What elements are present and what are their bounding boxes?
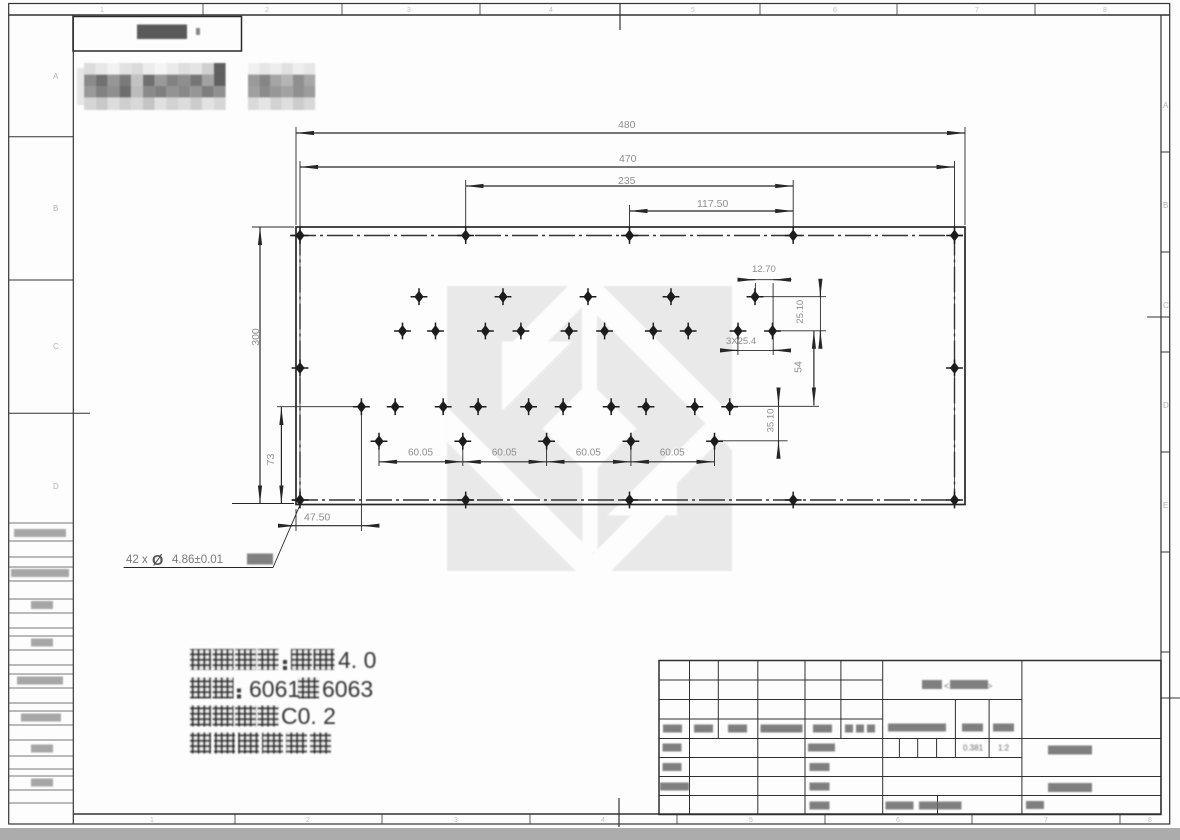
svg-text:60.05: 60.05 [576, 448, 601, 459]
svg-text:3: 3 [454, 817, 458, 824]
svg-text:D: D [1163, 401, 1169, 410]
svg-text:5: 5 [691, 7, 695, 14]
svg-text:6: 6 [896, 817, 900, 824]
svg-text:60.05: 60.05 [660, 448, 685, 459]
svg-text:C: C [1163, 301, 1169, 310]
svg-text:73: 73 [265, 454, 277, 466]
svg-text:8: 8 [1148, 817, 1152, 824]
svg-text:C0. 2: C0. 2 [281, 703, 336, 729]
svg-text:35.10: 35.10 [766, 409, 777, 433]
svg-text:25.10: 25.10 [795, 300, 806, 324]
svg-text:42 x: 42 x [126, 554, 148, 566]
svg-text:4.86±0.01: 4.86±0.01 [172, 554, 223, 566]
svg-text:1: 1 [100, 7, 104, 14]
svg-text:60.05: 60.05 [492, 448, 517, 459]
svg-text:6063: 6063 [322, 676, 373, 702]
svg-text:6: 6 [833, 7, 837, 14]
svg-text:54: 54 [793, 361, 805, 373]
svg-text:3: 3 [407, 7, 411, 14]
svg-text:>: > [987, 681, 992, 691]
svg-text:8: 8 [1103, 7, 1107, 14]
svg-text:<: < [944, 681, 949, 691]
svg-text:0.381: 0.381 [963, 744, 984, 753]
svg-text:A: A [1163, 101, 1169, 110]
svg-text:480: 480 [618, 119, 636, 131]
svg-text:2: 2 [265, 7, 269, 14]
svg-text:C: C [53, 342, 59, 351]
svg-text:117.50: 117.50 [697, 198, 728, 210]
svg-text:3X25.4: 3X25.4 [726, 336, 756, 347]
svg-text:E: E [1163, 501, 1168, 510]
svg-text:6061: 6061 [249, 676, 300, 702]
svg-text:60.05: 60.05 [408, 448, 433, 459]
svg-text:4: 4 [549, 7, 553, 14]
svg-text:1:2: 1:2 [998, 744, 1010, 753]
svg-text:4. 0: 4. 0 [338, 647, 376, 673]
svg-text:4: 4 [601, 817, 605, 824]
svg-text:235: 235 [618, 175, 636, 187]
svg-text:7: 7 [1044, 817, 1048, 824]
svg-text:7: 7 [975, 7, 979, 14]
svg-text:300: 300 [250, 328, 262, 346]
svg-text:A: A [53, 72, 59, 81]
svg-text:47.50: 47.50 [304, 512, 330, 524]
svg-text:1: 1 [150, 817, 154, 824]
svg-text:B: B [1163, 201, 1168, 210]
svg-text:5: 5 [749, 817, 753, 824]
svg-text:B: B [53, 204, 58, 213]
svg-text:Ø: Ø [152, 553, 163, 569]
svg-text:D: D [53, 482, 59, 491]
svg-text:2: 2 [306, 817, 310, 824]
svg-text:470: 470 [619, 153, 637, 165]
svg-text:12.70: 12.70 [752, 264, 776, 275]
